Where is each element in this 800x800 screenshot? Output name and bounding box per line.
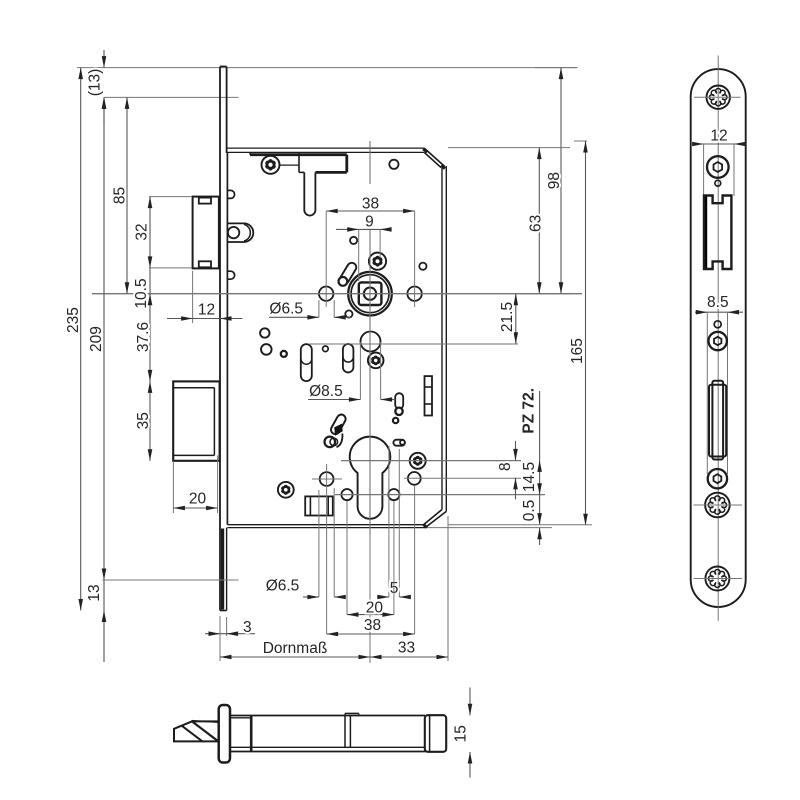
svg-text:12: 12	[710, 128, 727, 145]
svg-text:38: 38	[362, 196, 379, 213]
svg-text:85: 85	[112, 187, 129, 204]
svg-text:38: 38	[364, 617, 381, 634]
svg-text:13: 13	[86, 584, 103, 601]
svg-text:PZ 72.: PZ 72.	[521, 388, 538, 434]
svg-text:Dornmaß: Dornmaß	[263, 640, 328, 657]
svg-text:20: 20	[366, 599, 384, 616]
svg-text:37.6: 37.6	[135, 322, 152, 352]
svg-text:14.5: 14.5	[521, 462, 538, 492]
svg-text:(13): (13)	[87, 69, 104, 97]
svg-text:3: 3	[243, 619, 252, 636]
svg-text:32: 32	[134, 223, 151, 240]
svg-text:Ø6.5: Ø6.5	[269, 301, 303, 318]
svg-text:Ø8.5: Ø8.5	[309, 383, 343, 400]
svg-text:Ø6.5: Ø6.5	[266, 578, 300, 595]
svg-text:235: 235	[65, 307, 82, 333]
svg-text:98: 98	[546, 172, 563, 189]
svg-text:165: 165	[569, 338, 586, 364]
svg-text:15: 15	[453, 725, 470, 742]
svg-text:8.5: 8.5	[707, 294, 729, 311]
svg-text:209: 209	[88, 326, 105, 352]
svg-text:10.5: 10.5	[133, 278, 150, 308]
svg-text:9: 9	[365, 214, 374, 231]
svg-text:63: 63	[527, 215, 544, 232]
svg-text:0.5: 0.5	[521, 500, 538, 522]
svg-text:20: 20	[189, 491, 207, 508]
svg-text:21.5: 21.5	[499, 302, 516, 332]
svg-text:8: 8	[497, 462, 514, 471]
svg-text:33: 33	[398, 640, 415, 657]
svg-text:35: 35	[135, 412, 152, 429]
svg-text:12: 12	[198, 302, 215, 319]
